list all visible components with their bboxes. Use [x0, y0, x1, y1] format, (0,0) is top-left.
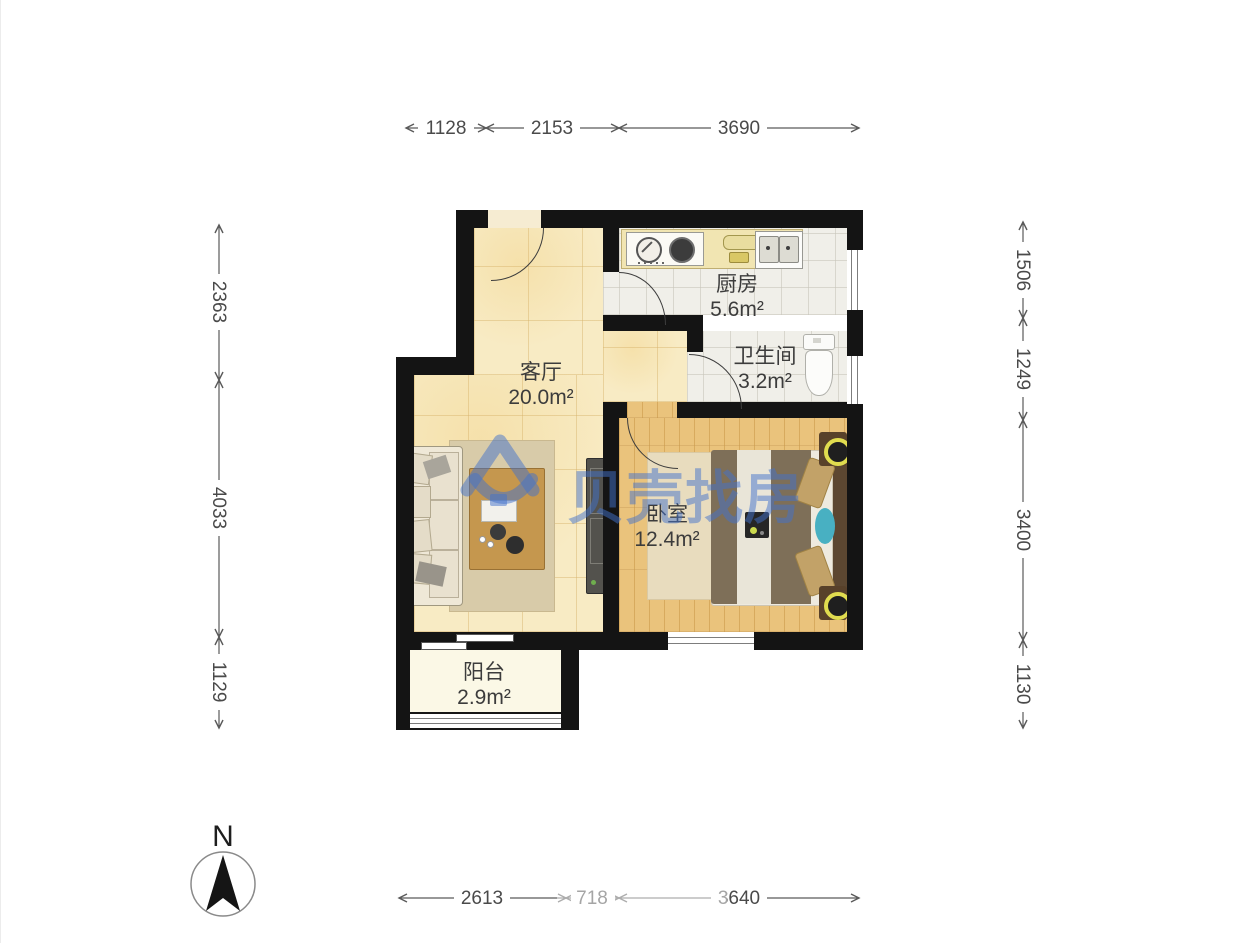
dim-left-3: 1129	[208, 662, 229, 703]
dim-bottom-2: 718	[576, 888, 608, 909]
window-line	[851, 250, 852, 310]
stove-burner	[669, 237, 695, 263]
toilet-button	[813, 338, 821, 343]
bedroom-door-gap	[627, 402, 677, 418]
wall-segment	[619, 402, 627, 418]
sofa-seat-cushion	[429, 500, 459, 550]
room-label-living: 客厅 20.0m²	[508, 360, 573, 410]
wall-segment	[561, 712, 579, 730]
faded-patch	[557, 883, 727, 911]
kitchen-door-gap	[603, 272, 619, 315]
window-line	[410, 723, 561, 724]
dim-bottom-3: 3640	[718, 888, 760, 909]
balcony-name: 阳台	[457, 660, 511, 685]
compass-circle	[191, 852, 255, 916]
dim-bottom-1: 2613	[461, 888, 503, 909]
wall-segment	[541, 210, 863, 228]
round-cushion	[815, 508, 835, 544]
living-name: 客厅	[508, 360, 573, 385]
room-label-balcony: 阳台 2.9m²	[457, 660, 511, 710]
kitchen-area: 5.6m²	[710, 297, 764, 322]
wall-segment	[847, 310, 863, 356]
teacup	[487, 541, 494, 548]
window-line	[857, 250, 858, 310]
window-line	[668, 637, 754, 638]
wall-segment	[847, 210, 863, 250]
window-line	[410, 718, 561, 719]
bathroom-window	[847, 356, 863, 404]
teapot	[490, 524, 506, 540]
dim-left-2: 4033	[208, 487, 229, 529]
compass-north-label: N	[212, 820, 234, 853]
teacup	[479, 536, 486, 543]
counter-item	[729, 252, 749, 263]
wall-segment	[847, 404, 863, 650]
stove-knobs	[638, 262, 668, 264]
kitchen-name: 厨房	[710, 272, 764, 297]
dim-top-2: 2153	[531, 118, 573, 139]
plant-dot	[591, 580, 596, 585]
living-area: 20.0m²	[508, 385, 573, 410]
dim-right-2: 1249	[1012, 348, 1033, 390]
wall-segment	[396, 712, 410, 730]
kitchen-window	[847, 250, 863, 310]
bedroom-window	[668, 632, 754, 650]
wall-segment	[687, 331, 703, 352]
room-label-kitchen: 厨房 5.6m²	[710, 272, 764, 322]
window-line	[851, 356, 852, 404]
sofa-back-cushion	[411, 486, 431, 518]
window-line	[857, 356, 858, 404]
compass: N	[191, 820, 255, 916]
dim-right-1: 1506	[1012, 249, 1033, 291]
living-room-corridor-floor	[603, 331, 687, 402]
balcony-window-band	[410, 712, 561, 730]
sliding-door-panel	[421, 642, 467, 650]
room-label-bathroom: 卫生间 3.2m²	[734, 344, 797, 394]
sink-drain	[786, 246, 790, 250]
wall-segment	[396, 357, 414, 650]
wall-segment	[456, 210, 474, 375]
toilet-bowl	[805, 350, 833, 396]
sliding-door-panel	[456, 634, 514, 642]
dim-right-4: 1130	[1012, 664, 1033, 705]
watermark-text: 贝壳找房	[567, 451, 803, 535]
bathroom-area: 3.2m²	[734, 369, 797, 394]
bathroom-name: 卫生间	[734, 344, 797, 369]
compass-needle-icon	[206, 855, 240, 911]
wall-segment	[754, 632, 863, 650]
dim-left-1: 2363	[208, 281, 229, 323]
wall-segment	[603, 228, 619, 272]
entrance-door-gap	[488, 210, 541, 228]
window-line	[668, 643, 754, 644]
wall-segment	[396, 650, 410, 712]
sink-drain	[766, 246, 770, 250]
dim-top-3: 3690	[718, 118, 760, 139]
stove-burner	[636, 237, 662, 263]
balcony-area: 2.9m²	[457, 685, 511, 710]
floor-plan-canvas: 厨房 5.6m² 卫生间 3.2m² 客厅 20.0m² 卧室 12.4m² 阳…	[0, 0, 1252, 943]
coffee-table-tray	[481, 500, 517, 522]
dim-top-1: 1128	[426, 118, 467, 139]
teapot	[506, 536, 524, 554]
dim-right-3: 3400	[1012, 509, 1033, 551]
wall-segment	[561, 650, 579, 712]
